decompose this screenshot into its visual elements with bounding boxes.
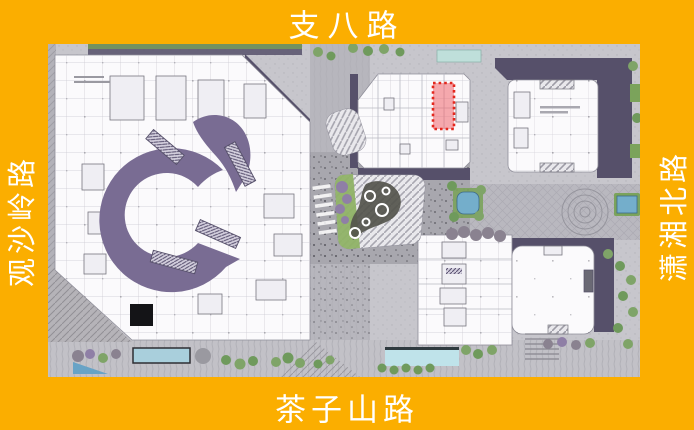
east-square-pool [614,193,640,216]
south-middle-building [418,235,512,345]
west-mall-building [55,55,310,340]
highlighted-unit [433,83,454,129]
glass-canopy [437,50,481,62]
plan-annotation-lines [74,76,104,78]
north-planting-strip [88,44,302,49]
road-label-south: 茶子山路 [275,385,419,430]
road-label-east: 潇湘北路 [651,150,693,282]
plaza-pavilion [335,174,425,249]
road-label-west: 观沙岭路 [0,155,41,287]
site-plan-map [48,44,640,377]
south-pool-west [133,348,190,363]
northeast-tower [508,80,598,172]
mall-north-shadow [88,49,302,55]
southeast-tower [512,246,594,334]
road-label-north: 支八路 [289,1,406,46]
slide-frame: 支八路 茶子山路 观沙岭路 潇湘北路 [0,0,694,430]
site-plan-graphic [48,44,640,377]
mall-entrance-void [130,304,153,326]
